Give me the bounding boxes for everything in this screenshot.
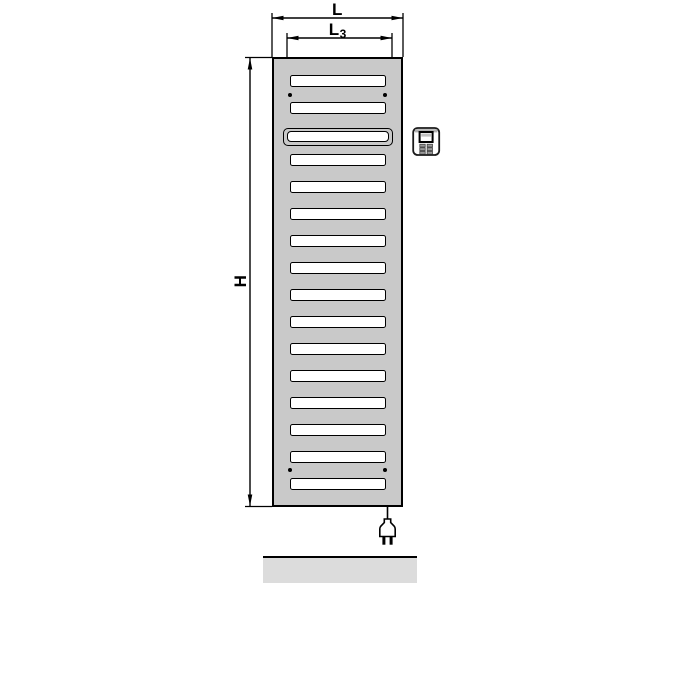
control-unit-display-shade xyxy=(421,134,431,137)
radiator-slot xyxy=(290,451,386,463)
radiator-slot xyxy=(290,154,386,166)
height-label-text: H xyxy=(232,275,249,288)
power-cable-and-plug xyxy=(380,507,395,545)
arrowhead-left xyxy=(287,36,299,41)
control-unit-icon xyxy=(412,126,441,157)
arrowhead-bottom xyxy=(248,495,253,507)
radiator-slot xyxy=(290,424,386,436)
radiator-slot xyxy=(290,370,386,382)
arrowhead-right xyxy=(381,36,393,41)
arrowhead-right xyxy=(392,16,404,21)
inner-width-label-text: L xyxy=(329,20,340,39)
plug-prong xyxy=(382,537,385,545)
plug-prong xyxy=(390,537,393,545)
radiator-wide-slot-inner xyxy=(287,131,389,142)
height-dimension-label: H xyxy=(227,263,253,299)
radiator-slot xyxy=(290,397,386,409)
radiator-slot xyxy=(290,181,386,193)
radiator-slot xyxy=(290,235,386,247)
inner-width-label-subscript: 3 xyxy=(340,27,347,41)
radiator-slot xyxy=(290,289,386,301)
radiator-slot xyxy=(290,75,386,87)
control-unit-display xyxy=(420,132,433,142)
radiator-body xyxy=(272,57,403,507)
arrowhead-top xyxy=(248,58,253,70)
radiator-slot xyxy=(290,102,386,114)
inner-width-dimension-label: L3 xyxy=(317,21,358,38)
mounting-hole xyxy=(383,93,388,98)
arrowhead-left xyxy=(272,16,284,21)
width-dimension-label: L xyxy=(317,1,358,18)
radiator-slot xyxy=(290,262,386,274)
mounting-hole xyxy=(288,93,293,98)
diagram-canvas: L L3 H xyxy=(0,0,700,700)
power-plug-icon xyxy=(380,519,395,537)
radiator-slot xyxy=(290,208,386,220)
mounting-hole xyxy=(383,468,388,473)
width-label-text: L xyxy=(332,0,343,19)
radiator-slot xyxy=(290,478,386,490)
floor-surface xyxy=(263,556,417,583)
radiator-slot xyxy=(290,316,386,328)
mounting-hole xyxy=(288,468,293,473)
radiator-slot xyxy=(290,343,386,355)
radiator-wide-slot xyxy=(283,128,393,146)
